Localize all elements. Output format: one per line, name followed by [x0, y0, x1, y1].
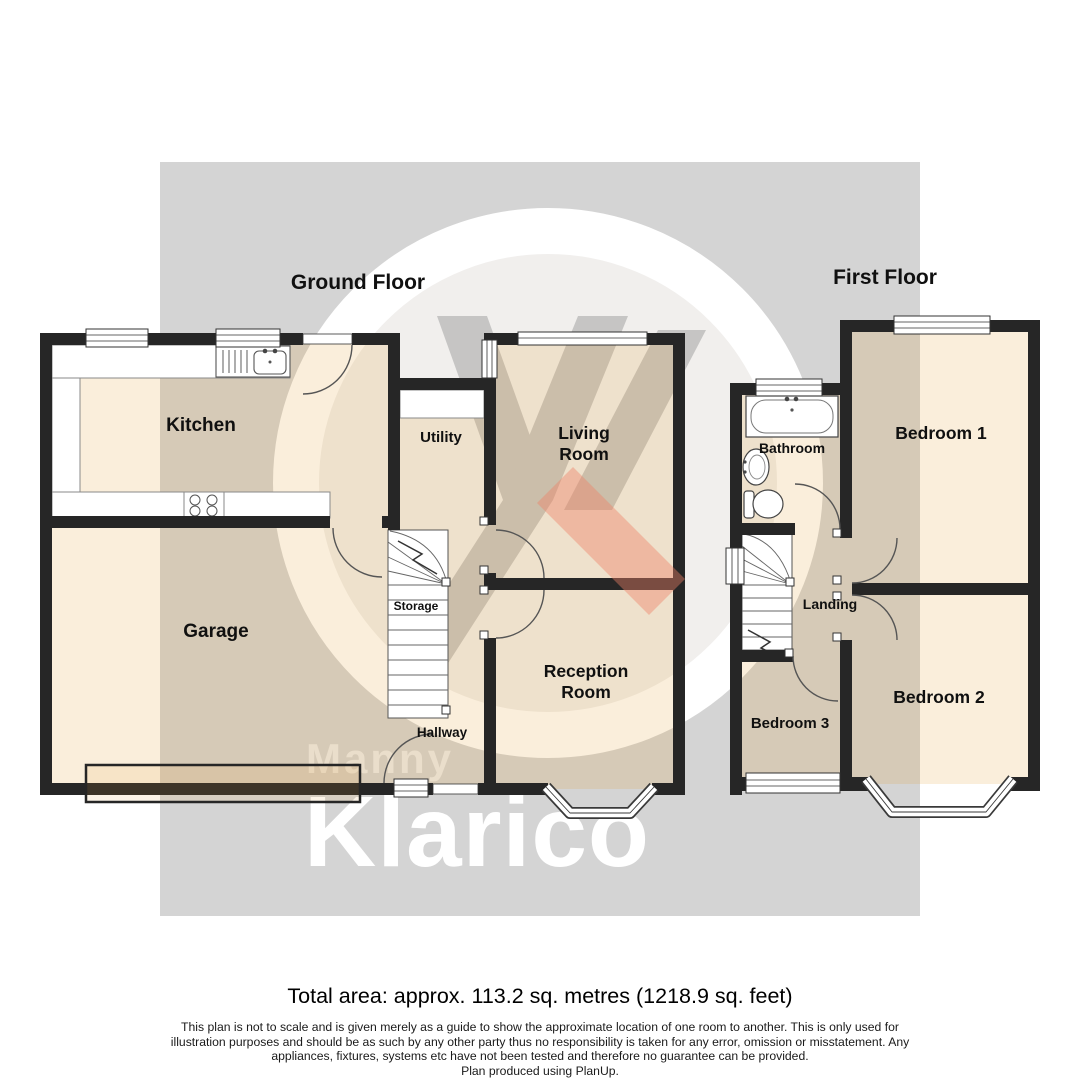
kitchen-back-door [303, 334, 352, 344]
hob-icon [184, 492, 224, 518]
window-bathroom [756, 379, 822, 397]
room-label-landing: Landing [803, 596, 857, 612]
room-label-living-1: Living [558, 423, 610, 443]
window-bedroom3 [746, 773, 840, 793]
disclaimer-line-2: illustration purposes and should be as s… [0, 1035, 1080, 1050]
room-label-bedroom2: Bedroom 2 [893, 687, 985, 707]
window-bedroom1 [894, 316, 990, 334]
door-frame-post [480, 586, 488, 594]
produced-by-text: Plan produced using PlanUp. [0, 1064, 1080, 1079]
window-living-room-top [518, 332, 647, 345]
door-frame-post [785, 649, 793, 657]
ground-left-block-floor [46, 339, 394, 789]
room-label-garage: Garage [183, 621, 248, 642]
ground-floor-title: Ground Floor [291, 271, 425, 294]
first-floor-title: First Floor [833, 266, 937, 289]
room-label-utility: Utility [420, 429, 462, 446]
bathtub-icon [746, 396, 838, 437]
disclaimer-block: This plan is not to scale and is given m… [0, 1020, 1080, 1078]
disclaimer-line-3: appliances, fixtures, systems etc have n… [0, 1049, 1080, 1064]
front-door [433, 784, 478, 794]
total-area-text: Total area: approx. 113.2 sq. metres (12… [0, 984, 1080, 1009]
window-kitchen-1 [86, 329, 148, 347]
ground-floor-plan: Kitchen Garage Utility Living Room Stora… [40, 329, 685, 813]
door-frame-post [833, 529, 841, 537]
door-frame-post [480, 631, 488, 639]
room-label-bathroom: Bathroom [759, 440, 825, 456]
door-frame-post [833, 576, 841, 584]
first-floor-plan: Bathroom Bedroom 1 Landing Bedroom 3 Bed… [726, 316, 1040, 812]
floorplan-page: Manny Klarico [0, 0, 1080, 1080]
room-label-bedroom1: Bedroom 1 [895, 423, 987, 443]
room-label-reception-1: Reception [544, 661, 629, 681]
window-kitchen-2 [216, 329, 280, 347]
window-living-room-side [482, 340, 497, 378]
room-label-hallway: Hallway [417, 725, 468, 740]
room-label-storage: Storage [394, 599, 439, 613]
window-hallway-front [394, 779, 428, 797]
window-landing-side [726, 548, 744, 584]
staircase-ground [388, 530, 450, 718]
utility-counter [400, 390, 484, 418]
room-label-living-2: Room [559, 444, 609, 464]
room-label-kitchen: Kitchen [166, 415, 236, 436]
door-frame-post [833, 633, 841, 641]
floorplan-canvas: Manny Klarico [0, 0, 1080, 1080]
room-label-bedroom3: Bedroom 3 [751, 715, 829, 732]
kitchen-sink-icon [216, 346, 290, 377]
staircase-first [742, 533, 794, 659]
door-frame-post [480, 517, 488, 525]
disclaimer-line-1: This plan is not to scale and is given m… [0, 1020, 1080, 1035]
toilet-icon [744, 490, 783, 518]
room-label-reception-2: Room [561, 682, 611, 702]
first-right-block-floor [846, 326, 1034, 784]
door-frame-post [480, 566, 488, 574]
kitchen-left-counter [52, 378, 80, 492]
garage-door [86, 765, 360, 802]
